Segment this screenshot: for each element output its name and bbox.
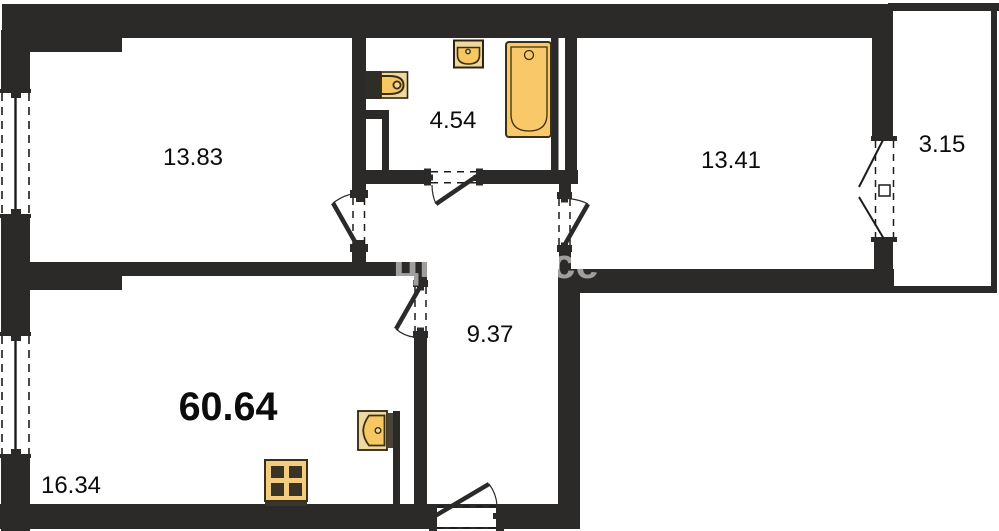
- svg-text:13.41: 13.41: [701, 147, 761, 174]
- svg-text:се: се: [552, 240, 599, 287]
- svg-text:60.64: 60.64: [179, 385, 278, 429]
- svg-text:ци: ци: [393, 239, 445, 286]
- svg-text:13.83: 13.83: [163, 144, 223, 171]
- svg-text:16.34: 16.34: [41, 472, 101, 499]
- svg-text:9.37: 9.37: [467, 321, 514, 348]
- svg-text:3.15: 3.15: [919, 131, 966, 158]
- svg-text:4.54: 4.54: [430, 107, 477, 134]
